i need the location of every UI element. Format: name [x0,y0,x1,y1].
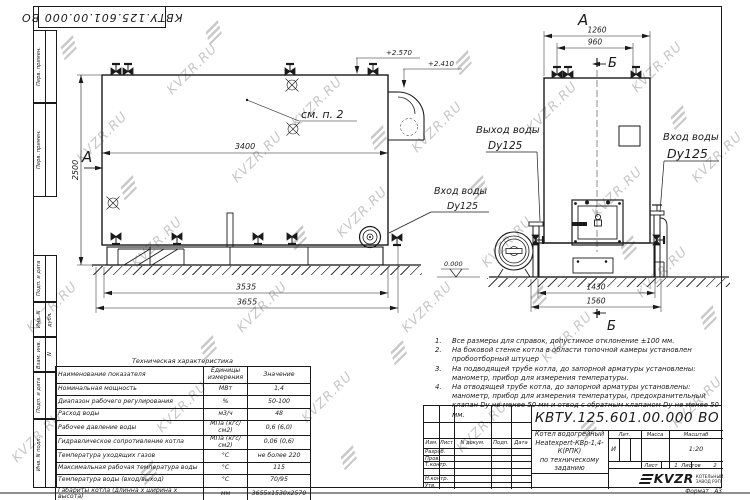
boiler-side-view: 3400 см. п. 2 А 2500 +2 [71,49,489,313]
param-value: 3655х1530х2570 [248,487,311,500]
flue-outlet [388,92,424,140]
col-name-header: Наименование показателя [56,367,204,384]
param-unit: °С [204,450,248,462]
table-row: Габариты котла (длинна х ширина х высота… [56,487,311,500]
strip-box-podp-data-1: Подп. и дата [33,255,57,302]
table-row: Температура уходящих газов°Сне более 220 [56,450,311,462]
blower-fan [494,232,534,277]
param-unit: МВт [204,384,248,396]
valve-icon [631,67,641,78]
col-unit-header: Единицы измерения [204,367,248,384]
valve-icon [111,64,121,75]
product-name: Котел водогрейный Heatexpert-КВр-1,4-К(Р… [531,430,608,473]
inlet-label-line2: Dy125 [447,201,478,212]
param-unit: % [204,396,248,408]
view-a-label: А [81,148,92,166]
company-logo: KVZR КОТЕЛЬНЫЙ ЗАВОД РЭП [641,468,723,489]
col-list: Лист [439,440,454,447]
param-unit: мм [204,487,248,500]
note-text: На подводящей трубе котла, до запорной а… [452,365,722,383]
strip-box-inv-podl: Инв. N подл. [33,419,57,488]
strip-box-vzam-inv: Взам. инв. N [33,337,57,372]
table-row: Номинальная мощностьМВт1,4 [56,384,311,396]
dim-1560: 1560 [586,297,605,306]
param-name: Номинальная мощность [56,384,204,396]
valve-icon [563,67,573,78]
table-row: Гидравлическое сопротивление котлаМПа (к… [56,435,311,450]
valve-icon [392,234,402,245]
lit-value: И [608,446,619,453]
strip-label: Перв. примен. [34,31,45,102]
row-utv: Утв. [425,483,455,490]
param-name: Рабочее давление воды [56,421,204,436]
position-mark-icon [286,79,299,92]
strip-label: Инв. N подл. [34,420,45,487]
inlet-label-line2: Dy125 [667,146,708,161]
col-ndokum: N докум. [454,440,491,447]
param-unit: м3/ч [204,408,248,420]
lit-header: Лит. [608,432,641,439]
level-mark-label: 0.000 [444,260,463,268]
top-doc-number: КВТУ.125.601.00.000 ВО [21,11,182,24]
dim-3535: 3535 [236,283,256,292]
kvzr-logo-icon [639,473,654,484]
dim-1430: 1430 [586,283,605,292]
strip-label: Перв. примен. [34,104,45,196]
mass-header: Масса [641,432,669,439]
furnace-door [572,200,623,245]
inspection-hatch [619,126,640,146]
table-row: Максимальная рабочая температура воды°С1… [56,462,311,474]
param-unit: МПа (кгс/см2) [204,421,248,436]
section-b-top-label: Б [608,56,617,71]
param-name: Гидравлическое сопротивление котла [56,435,204,450]
valve-icon [285,64,295,75]
note-text: На боковой стенке котла в области топочн… [452,346,722,364]
param-name: Габариты котла (длинна х ширина х высота… [56,487,204,500]
tech-table-title: Техническая характеристика [55,357,310,366]
support-skid [107,213,383,265]
format-value: А3 [714,489,722,495]
outlet-label-line2: Dy125 [488,140,523,152]
param-value: 50-100 [248,396,311,408]
note-item: 1.Все размеры для справок, допустимое от… [435,337,722,346]
strip-box-inv-dubl: Инв. N дубл. [33,302,57,337]
valve-icon [368,64,378,75]
row-tkontr: Т.контр. [425,462,455,469]
param-value: 48 [248,408,311,420]
col-podp: Подп. [491,440,511,447]
note-item: 2.На боковой стенке котла в области топо… [435,346,722,364]
position-mark-icon [107,197,120,210]
col-value-header: Значение [248,367,311,384]
param-name: Расход воды [56,408,204,420]
scale-header: Масштаб [669,432,723,439]
col-izm: Изм. [424,440,439,447]
strip-label: Подп. и дата [34,373,45,418]
strip-box-podp-data-2: Подп. и дата [33,372,57,419]
valve-icon [552,67,562,78]
doc-number: КВТУ.125.601.00.000 ВО [531,406,723,429]
note-number: 3. [435,365,452,383]
drawing-sheet: KVZR.RU KVZR.RU KVZR.RU KVZR.RU KVZR.RU … [0,0,750,500]
valve-icon [653,235,664,245]
param-name: Температура уходящих газов [56,450,204,462]
param-value: 70/95 [248,475,311,487]
table-row: Диапазон рабочего регулирования%50-100 [56,396,311,408]
position-mark-icon [287,123,300,136]
dim-960: 960 [588,38,603,47]
outlet-label-line1: Выход воды [476,125,540,136]
tech-characteristics: Техническая характеристика Наименование … [55,357,310,500]
param-name: Температура воды (вход/выход) [56,475,204,487]
kvzr-logo-text: KVZR [654,471,694,486]
product-name-line2: Heatexpert-КВр-1,4-К(РПК) [531,439,608,456]
format-word: Формат [685,489,709,495]
scale-value: 1:20 [669,446,723,453]
elev-2570: +2.570 [386,49,412,57]
param-value: 1,4 [248,384,311,396]
param-unit: МПа (кгс/см2) [204,435,248,450]
strip-box-perv-primen-2: Перв. примен. [33,103,57,197]
param-unit: °С [204,462,248,474]
tech-table: Наименование показателя Единицы измерени… [55,366,311,500]
strip-box-perv-primen-1: Перв. примен. [33,30,57,103]
strip-label: Взам. инв. N [34,338,45,371]
inlet-flange [360,227,381,248]
strip-label: Инв. N дубл. [34,303,45,336]
dim-2500: 2500 [71,160,80,180]
valve-icon [123,64,133,75]
see-note-label: см. п. 2 [301,108,344,121]
kvzr-logo-caption: КОТЕЛЬНЫЙ ЗАВОД РЭП [696,474,723,484]
boiler-front-view: А 1260 960 Б [437,11,729,334]
title-block: Изм. Лист N докум. Подп. Дата Разраб. Пр… [423,405,722,488]
table-row: Расход водым3/ч48 [56,408,311,420]
param-name: Диапазон рабочего регулирования [56,396,204,408]
format-label: Формат А3 [600,489,722,495]
col-data: Дата [511,440,531,447]
note-number: 2. [435,346,452,364]
dim-3400: 3400 [235,142,255,151]
row-nkontr: Н.контр. [425,476,455,483]
boiler-drawing: 3400 см. п. 2 А 2500 +2 [0,0,750,360]
note-text: Все размеры для справок, допустимое откл… [452,337,722,346]
section-b-bottom-label: Б [607,319,616,334]
param-value: 115 [248,462,311,474]
outlet-pipe [529,222,543,277]
tech-table-header: Наименование показателя Единицы измерени… [56,367,311,384]
param-unit: °С [204,475,248,487]
top-doc-number-stamp: КВТУ.125.601.00.000 ВО [38,6,166,28]
valve-icon [111,233,121,244]
table-row: Температура воды (вход/выход)°С70/95 [56,475,311,487]
strip-label: Подп. и дата [34,256,45,301]
note-number: 1. [435,337,452,346]
product-name-line3: по техническому заданию [531,456,608,473]
elev-2410: +2.410 [428,60,454,68]
inlet-label-line1: Вход воды [434,186,488,197]
note-item: 3.На подводящей трубе котла, до запорной… [435,365,722,383]
dim-3655: 3655 [237,298,257,307]
param-value: 0,6 (6,0) [248,421,311,436]
dim-1260: 1260 [587,26,606,35]
param-value: 0,06 (0,6) [248,435,311,450]
valve-icon [253,233,263,244]
table-row: Рабочее давление водыМПа (кгс/см2)0,6 (6… [56,421,311,436]
base-box [538,243,664,277]
valve-icon [172,233,182,244]
product-name-line1: Котел водогрейный [535,430,604,439]
param-name: Максимальная рабочая температура воды [56,462,204,474]
logo-caption-line2: ЗАВОД РЭП [696,479,721,484]
boiler-body [102,75,388,245]
inlet-label-line1: Вход воды [663,132,719,143]
param-value: не более 220 [248,450,311,462]
valve-icon [287,233,297,244]
